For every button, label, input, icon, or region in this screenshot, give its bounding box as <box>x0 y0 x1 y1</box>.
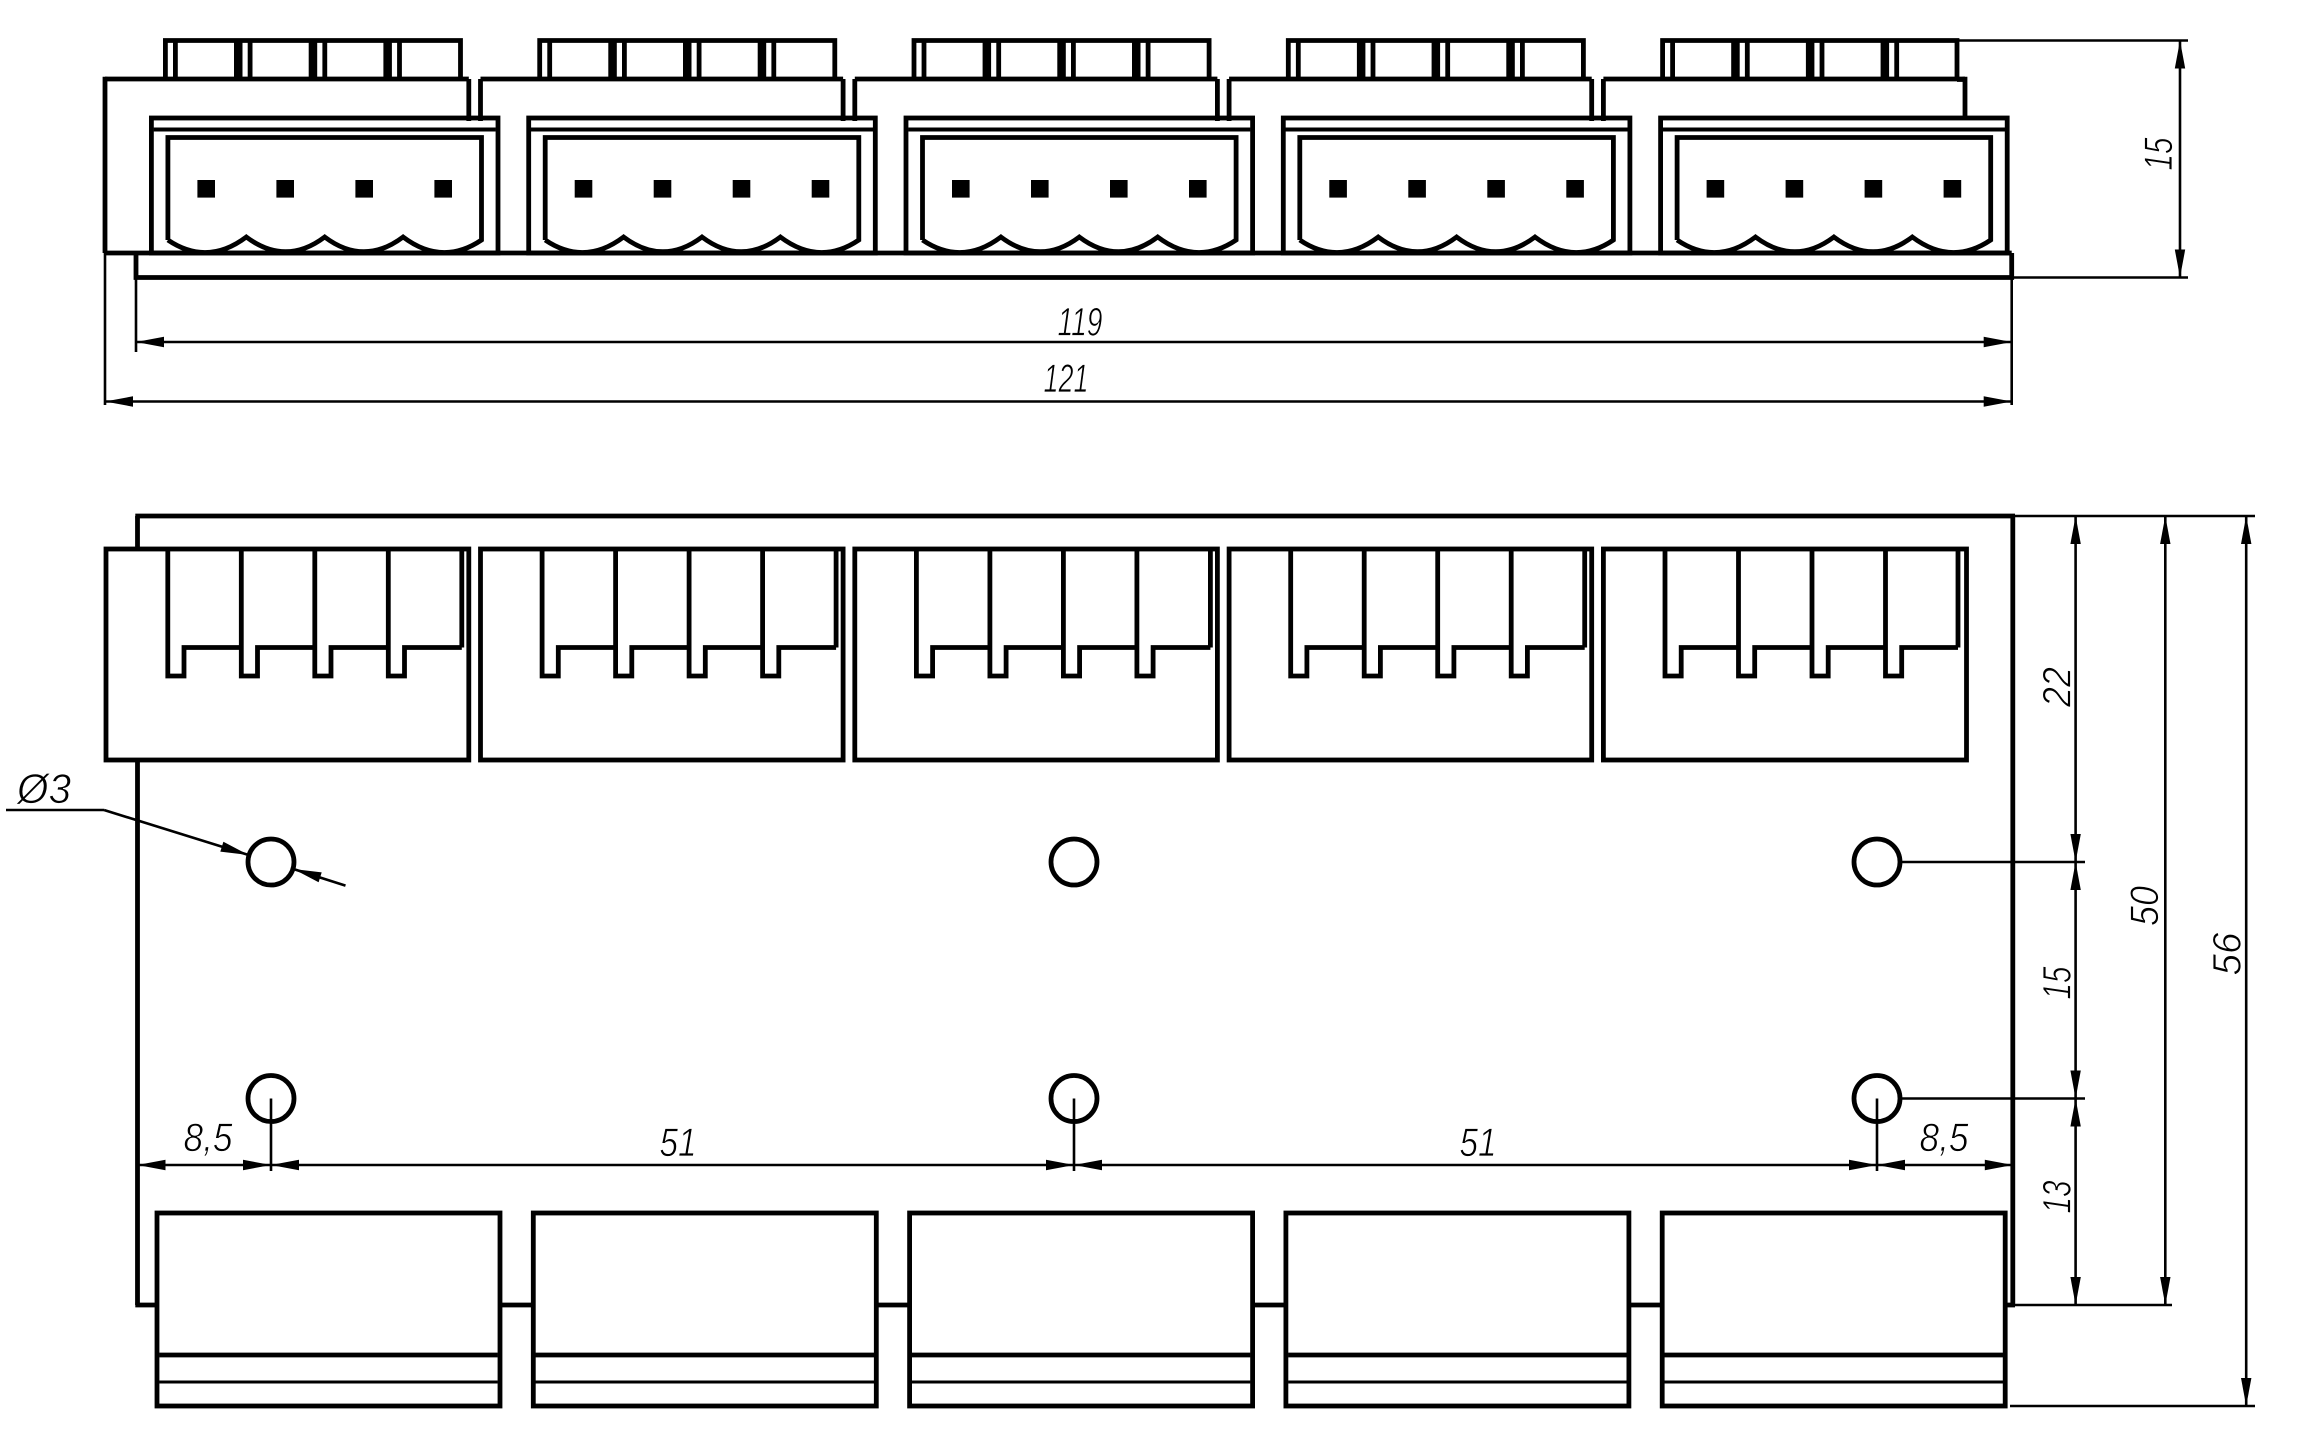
svg-text:121: 121 <box>1044 357 1089 401</box>
svg-text:56: 56 <box>2205 932 2249 976</box>
svg-text:13: 13 <box>2035 1181 2079 1214</box>
svg-text:50: 50 <box>2123 886 2167 926</box>
svg-text:15: 15 <box>2035 966 2079 1000</box>
svg-text:119: 119 <box>1058 301 1103 345</box>
svg-text:8,5: 8,5 <box>184 1116 234 1160</box>
svg-text:22: 22 <box>2035 667 2079 708</box>
svg-text:Ø3: Ø3 <box>15 765 71 812</box>
svg-text:51: 51 <box>660 1121 697 1165</box>
svg-text:15: 15 <box>2137 137 2181 171</box>
svg-text:8,5: 8,5 <box>1920 1116 1970 1160</box>
svg-text:51: 51 <box>1460 1121 1497 1165</box>
